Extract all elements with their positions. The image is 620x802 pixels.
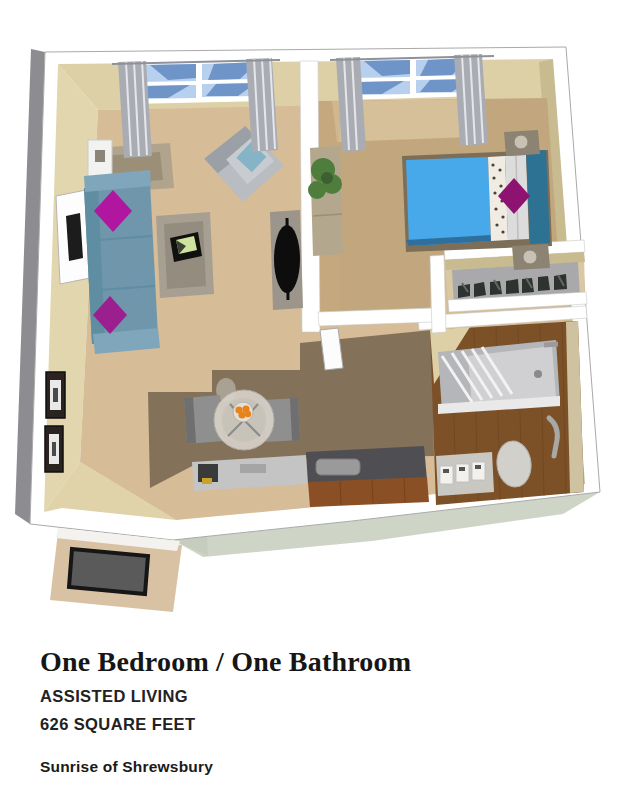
nightstand-bottom — [512, 244, 550, 270]
bed — [402, 150, 552, 252]
curtain-right — [454, 54, 488, 146]
vanity — [436, 452, 494, 496]
sofa — [84, 170, 160, 354]
nightstand-top — [504, 130, 540, 156]
shower-drain — [534, 370, 542, 378]
shower-head — [544, 342, 558, 348]
coffee-table — [156, 212, 214, 298]
bed-headboard — [526, 150, 550, 244]
media-console — [270, 210, 303, 310]
bathroom — [418, 306, 587, 505]
plant-shelf — [308, 146, 343, 256]
community-name: Sunrise of Shrewsbury — [40, 758, 620, 776]
entry — [50, 528, 182, 612]
floorplan-3d-render — [0, 0, 620, 620]
curtain-left — [118, 61, 152, 158]
floorplan-svg — [0, 0, 620, 620]
lamp — [514, 135, 528, 149]
lamp — [523, 250, 537, 264]
caption: One Bedroom / One Bathroom ASSISTED LIVI… — [40, 646, 620, 776]
kitchen-sink — [316, 459, 360, 475]
shower — [438, 340, 560, 414]
care-level-label: ASSISTED LIVING — [40, 687, 620, 706]
plan-title: One Bedroom / One Bathroom — [40, 646, 620, 678]
cabinet-base — [308, 477, 429, 507]
doormat — [69, 549, 148, 594]
square-feet-label: 626 SQUARE FEET — [40, 715, 620, 734]
bed-duvet — [406, 157, 491, 246]
